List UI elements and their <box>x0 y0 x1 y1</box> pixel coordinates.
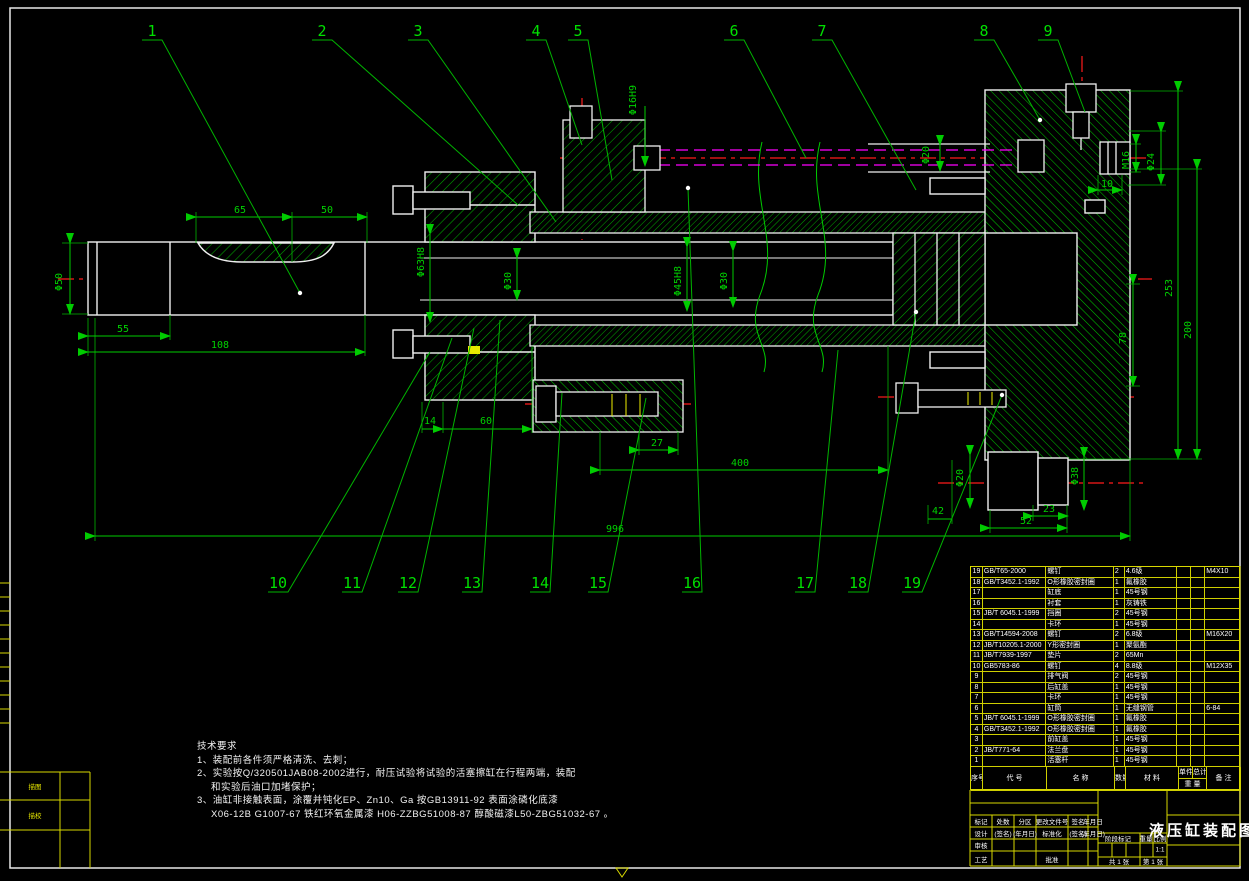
parts-cell: 活塞杆 <box>1046 756 1113 766</box>
parts-cell: 2 <box>1114 567 1125 577</box>
dimension-label: Φ63H8 <box>416 247 427 277</box>
parts-table-row: 2JB/T771-64法兰盘145号钢 <box>971 746 1239 757</box>
parts-cell <box>1177 641 1191 651</box>
parts-cell: 1 <box>1114 756 1125 766</box>
parts-cell: GB/T3452.1-1992 <box>983 725 1047 735</box>
part-callout-18: 18 <box>849 574 867 592</box>
parts-table-row: 7卡环145号钢 <box>971 693 1239 704</box>
parts-cell: JB/T 6045.1-1999 <box>983 714 1047 724</box>
dimension-label: 65 <box>234 205 246 216</box>
part-callout-1: 1 <box>147 22 156 40</box>
parts-cell <box>983 704 1047 714</box>
parts-cell <box>1191 599 1205 609</box>
parts-cell: O形橡胶密封圈 <box>1046 714 1113 724</box>
parts-cell <box>1177 672 1191 682</box>
dimension-label: 200 <box>1183 321 1194 339</box>
parts-cell: 1 <box>1114 578 1125 588</box>
parts-cell: 1 <box>1114 683 1125 693</box>
parts-cell <box>1205 746 1239 756</box>
parts-cell: O形橡胶密封圈 <box>1046 725 1113 735</box>
parts-cell <box>1205 693 1239 703</box>
parts-cell: 1 <box>1114 620 1125 630</box>
parts-table-row: 16衬套1灰铸铁 <box>971 599 1239 610</box>
notes-title: 技术要求 <box>197 740 677 754</box>
parts-cell: 1 <box>1114 714 1125 724</box>
parts-table-row: 8后缸盖145号钢 <box>971 683 1239 694</box>
parts-cell: 2 <box>1114 672 1125 682</box>
note-line: 和实验后油口加堵保护； <box>197 781 677 795</box>
dimension-label: Φ20 <box>921 146 932 164</box>
parts-cell: 12 <box>971 641 983 651</box>
parts-table-row: 6缸筒1无缝钢管6-84 <box>971 704 1239 715</box>
parts-cell <box>1177 683 1191 693</box>
rear-bore <box>985 233 1077 325</box>
part-callout-14: 14 <box>531 574 549 592</box>
gland-bolt-bottom <box>393 330 413 358</box>
parts-cell: 法兰盘 <box>1046 746 1113 756</box>
parts-cell: 无缝钢管 <box>1125 704 1178 714</box>
parts-cell <box>1177 756 1191 766</box>
parts-cell: 氟橡胶 <box>1125 578 1178 588</box>
parts-header-cell: 数量 <box>1115 767 1126 791</box>
parts-cell: 灰铸铁 <box>1125 599 1178 609</box>
dimension-label: 23 <box>1043 504 1055 515</box>
part-callout-9: 9 <box>1043 22 1052 40</box>
parts-header-cell: 重 量 <box>1179 779 1207 791</box>
parts-cell <box>1205 651 1239 661</box>
parts-cell <box>1191 641 1205 651</box>
parts-cell <box>1205 714 1239 724</box>
parts-cell: 7 <box>971 693 983 703</box>
parts-cell: 45号钢 <box>1125 609 1178 619</box>
parts-cell: 65Mn <box>1125 651 1178 661</box>
dimension-label: 14 <box>424 416 436 427</box>
parts-cell: 卡环 <box>1046 620 1113 630</box>
part-callout-4: 4 <box>531 22 540 40</box>
dimension-label: 108 <box>211 340 229 351</box>
parts-cell: 45号钢 <box>1125 735 1178 745</box>
parts-cell: 1 <box>1114 735 1125 745</box>
parts-table-row: 3前缸盖145号钢 <box>971 735 1239 746</box>
parts-cell <box>1191 651 1205 661</box>
parts-cell <box>1191 588 1205 598</box>
dimension-label: 42 <box>932 506 944 517</box>
parts-table-row: 11JB/T7939-1997垫片265Mn <box>971 651 1239 662</box>
leader-dot <box>914 310 918 314</box>
parts-header-cell: 单件 <box>1179 767 1193 779</box>
parts-cell: 卡环 <box>1046 693 1113 703</box>
parts-cell <box>1205 588 1239 598</box>
part-callout-13: 13 <box>463 574 481 592</box>
parts-cell: 1 <box>1114 704 1125 714</box>
technical-notes: 技术要求 1、装配前各件须严格清洗、去刺； 2、实验按Q/320501JAB08… <box>197 740 677 821</box>
dimension-label: 52 <box>1020 516 1032 527</box>
part-callout-6: 6 <box>729 22 738 40</box>
parts-table-rows: 19GB/T65-2000螺钉24.6级M4X1018GB/T3452.1-19… <box>971 567 1239 767</box>
parts-cell: M12X35 <box>1205 662 1239 672</box>
parts-cell: 1 <box>1114 746 1125 756</box>
parts-table: 19GB/T65-2000螺钉24.6级M4X1018GB/T3452.1-19… <box>970 566 1240 790</box>
parts-cell: 螺钉 <box>1046 630 1113 640</box>
part-callout-3: 3 <box>413 22 422 40</box>
parts-cell: M4X10 <box>1205 567 1239 577</box>
parts-cell: 2 <box>1114 609 1125 619</box>
parts-cell: 排气阀 <box>1046 672 1113 682</box>
parts-cell: 11 <box>971 651 983 661</box>
parts-cell: 1 <box>1114 588 1125 598</box>
dimension-label: Φ16H9 <box>628 85 639 115</box>
parts-cell: JB/T7939-1997 <box>983 651 1047 661</box>
parts-cell <box>1177 599 1191 609</box>
parts-cell <box>1177 651 1191 661</box>
note-line: 3、油缸非接触表面，涂覆并钝化EP、Zn10、Ga 按GB13911-92 表面… <box>197 794 677 808</box>
parts-cell: 6 <box>971 704 983 714</box>
leader-dot <box>1000 393 1004 397</box>
boss-stud <box>570 106 592 138</box>
parts-cell: 45号钢 <box>1125 693 1178 703</box>
parts-cell: 13 <box>971 630 983 640</box>
parts-cell <box>1177 704 1191 714</box>
parts-cell: 14 <box>971 620 983 630</box>
boss-bolt-head <box>536 386 556 422</box>
front-port-boss <box>563 106 645 212</box>
parts-cell <box>1177 620 1191 630</box>
dimension-label: 27 <box>651 438 663 449</box>
parts-cell <box>1191 683 1205 693</box>
gland-bolt-top <box>393 186 413 214</box>
parts-cell: 45号钢 <box>1125 672 1178 682</box>
parts-cell <box>1191 609 1205 619</box>
parts-cell: 衬套 <box>1046 599 1113 609</box>
parts-cell: 1 <box>1114 725 1125 735</box>
parts-cell: 17 <box>971 588 983 598</box>
parts-header-cell: 序号 <box>971 767 983 791</box>
rod-wrench-flat <box>198 243 334 262</box>
parts-cell: 缸底 <box>1046 588 1113 598</box>
parts-table-row: 5JB/T 6045.1-1999O形橡胶密封圈1氟橡胶 <box>971 714 1239 725</box>
parts-cell: 后缸盖 <box>1046 683 1113 693</box>
parts-cell <box>1177 578 1191 588</box>
part-callout-16: 16 <box>683 574 701 592</box>
parts-table-row: 18GB/T3452.1-1992O形橡胶密封圈1氟橡胶 <box>971 578 1239 589</box>
parts-cell: 螺钉 <box>1046 567 1113 577</box>
parts-cell: 缸筒 <box>1046 704 1113 714</box>
parts-cell <box>1205 683 1239 693</box>
callout-leader <box>848 312 916 592</box>
parts-header-cell: 名 称 <box>1047 767 1115 791</box>
part-callout-5: 5 <box>573 22 582 40</box>
parts-header-cell: 材 料 <box>1126 767 1179 791</box>
parts-cell: 3 <box>971 735 983 745</box>
parts-cell <box>983 735 1047 745</box>
parts-cell <box>1191 735 1205 745</box>
parts-cell: 45号钢 <box>1125 620 1178 630</box>
parts-table-row: 17缸底145号钢 <box>971 588 1239 599</box>
callout-leader <box>812 40 916 190</box>
parts-cell: 前缸盖 <box>1046 735 1113 745</box>
parts-cell <box>983 756 1047 766</box>
dimension-label: Φ45H8 <box>673 266 684 296</box>
parts-cell: 9 <box>971 672 983 682</box>
parts-cell: 45号钢 <box>1125 588 1178 598</box>
parts-cell: 10 <box>971 662 983 672</box>
dimension-label: 253 <box>1164 279 1175 297</box>
parts-cell <box>1177 588 1191 598</box>
leader-dot <box>298 291 302 295</box>
parts-cell <box>1205 672 1239 682</box>
parts-cell: GB/T65-2000 <box>983 567 1047 577</box>
piston <box>893 233 985 325</box>
rear-clevis <box>988 452 1068 510</box>
parts-cell <box>983 693 1047 703</box>
parts-cell: 1 <box>1114 693 1125 703</box>
parts-cell <box>1191 693 1205 703</box>
bottom-port-boss <box>533 380 683 432</box>
parts-cell: M16X20 <box>1205 630 1239 640</box>
parts-cell <box>983 599 1047 609</box>
parts-cell <box>1191 567 1205 577</box>
leader-dot <box>686 186 690 190</box>
flange-screw-top <box>930 178 985 194</box>
part-callout-17: 17 <box>796 574 814 592</box>
parts-cell: JB/T 6045.1-1999 <box>983 609 1047 619</box>
dimension-label: Φ38 <box>1070 467 1081 485</box>
parts-cell: 19 <box>971 567 983 577</box>
flange-screw-bottom <box>930 352 985 368</box>
parts-cell: 6-84 <box>1205 704 1239 714</box>
parts-cell <box>1205 725 1239 735</box>
parts-cell <box>1177 714 1191 724</box>
parts-cell: 45号钢 <box>1125 683 1178 693</box>
parts-cell: 1 <box>971 756 983 766</box>
parts-cell <box>1205 756 1239 766</box>
leader-dot <box>1038 118 1042 122</box>
part-callout-11: 11 <box>343 574 361 592</box>
parts-cell: 氟橡胶 <box>1125 725 1178 735</box>
parts-table-row: 19GB/T65-2000螺钉24.6级M4X10 <box>971 567 1239 578</box>
parts-cell <box>1191 662 1205 672</box>
parts-cell: 16 <box>971 599 983 609</box>
part-callout-15: 15 <box>589 574 607 592</box>
top-oil-passage <box>634 140 1044 172</box>
parts-table-row: 12JB/T10205.1-2000Y形密封圈1聚氨酯 <box>971 641 1239 652</box>
part-callout-8: 8 <box>979 22 988 40</box>
parts-cell: 18 <box>971 578 983 588</box>
parts-cell: O形橡胶密封圈 <box>1046 578 1113 588</box>
parts-cell <box>983 588 1047 598</box>
parts-cell <box>1191 630 1205 640</box>
parts-cell: 挡圈 <box>1046 609 1113 619</box>
parts-cell: 8.8级 <box>1125 662 1178 672</box>
parts-cell: JB/T10205.1-2000 <box>983 641 1047 651</box>
passage-fitting-rear <box>1018 140 1044 172</box>
part-callout-19: 19 <box>903 574 921 592</box>
parts-cell: 5 <box>971 714 983 724</box>
parts-cell: 螺钉 <box>1046 662 1113 672</box>
parts-table-row: 15JB/T 6045.1-1999挡圈245号钢 <box>971 609 1239 620</box>
parts-cell <box>1205 578 1239 588</box>
parts-cell: 8 <box>971 683 983 693</box>
parts-cell <box>983 672 1047 682</box>
parts-table-row: 14卡环145号钢 <box>971 620 1239 631</box>
parts-cell <box>983 683 1047 693</box>
parts-cell: 2 <box>1114 651 1125 661</box>
callout-leader <box>268 352 430 592</box>
parts-cell <box>1191 672 1205 682</box>
parts-cell <box>1177 746 1191 756</box>
parts-table-header: 序号代 号名 称数量材 料单件总计重 量备 注 <box>971 766 1239 791</box>
parts-cell <box>1205 735 1239 745</box>
parts-cell <box>1191 578 1205 588</box>
parts-cell: GB/T14594-2008 <box>983 630 1047 640</box>
dimension-label: 78 <box>1118 332 1129 344</box>
parts-cell <box>1177 725 1191 735</box>
dimension-label: 400 <box>731 458 749 469</box>
parts-cell: 氟橡胶 <box>1125 714 1178 724</box>
parts-cell: GB5783-86 <box>983 662 1047 672</box>
parts-cell <box>1191 725 1205 735</box>
parts-cell <box>1191 620 1205 630</box>
parts-cell: 15 <box>971 609 983 619</box>
parts-table-row: 10GB5783-86螺钉48.8级M12X35 <box>971 662 1239 673</box>
parts-cell <box>1205 609 1239 619</box>
parts-cell <box>1205 641 1239 651</box>
dimension-label: M16 <box>1121 151 1132 169</box>
parts-cell <box>1191 714 1205 724</box>
parts-cell: 聚氨酯 <box>1125 641 1178 651</box>
dimension-label: 10 <box>1101 179 1113 190</box>
parts-cell: 2 <box>1114 630 1125 640</box>
parts-cell <box>1177 609 1191 619</box>
parts-cell <box>1205 599 1239 609</box>
parts-cell <box>1205 620 1239 630</box>
parts-table-row: 9排气阀245号钢 <box>971 672 1239 683</box>
parts-table-row: 4GB/T3452.1-1992O形橡胶密封圈1氟橡胶 <box>971 725 1239 736</box>
parts-table-row: 13GB/T14594-2008螺钉26.8级M16X20 <box>971 630 1239 641</box>
note-line: 2、实验按Q/320501JAB08-2002进行，耐压试验将试验的活塞擦缸在行… <box>197 767 677 781</box>
dimension-label: 60 <box>480 416 492 427</box>
parts-cell <box>1177 630 1191 640</box>
parts-header-cell: 备 注 <box>1207 767 1241 791</box>
parts-cell: 6.8级 <box>1125 630 1178 640</box>
cad-drawing-screenshot: Φ50551086550Φ63H8Φ30Φ16H9Φ45H8Φ301460274… <box>0 0 1249 881</box>
parts-cell: 45号钢 <box>1125 756 1178 766</box>
parts-cell <box>1191 704 1205 714</box>
part-callout-12: 12 <box>399 574 417 592</box>
parts-cell: 4.6级 <box>1125 567 1178 577</box>
dimension-label: Φ20 <box>955 469 966 487</box>
parts-header-cell: 代 号 <box>983 767 1047 791</box>
parts-cell: JB/T771-64 <box>983 746 1047 756</box>
parts-cell: 4 <box>1114 662 1125 672</box>
note-line: 1、装配前各件须严格清洗、去刺； <box>197 754 677 768</box>
part-callout-10: 10 <box>269 574 287 592</box>
parts-cell <box>1177 662 1191 672</box>
part-callout-7: 7 <box>817 22 826 40</box>
parts-cell: 4 <box>971 725 983 735</box>
parts-cell <box>1191 756 1205 766</box>
callout-leader <box>724 40 806 158</box>
dimension-label: Φ24 <box>1146 153 1157 171</box>
parts-cell: GB/T3452.1-1992 <box>983 578 1047 588</box>
parts-cell <box>1177 735 1191 745</box>
parts-cell: 2 <box>971 746 983 756</box>
parts-cell: 1 <box>1114 599 1125 609</box>
parts-cell: 垫片 <box>1046 651 1113 661</box>
parts-header-cell: 总计 <box>1193 767 1207 779</box>
dimension-label: 55 <box>117 324 129 335</box>
note-line: X06-12B G1007-67 铁红环氧金属漆 H06-ZZBG51008-8… <box>197 808 677 822</box>
small-fitting <box>1085 200 1105 213</box>
parts-cell: 1 <box>1114 641 1125 651</box>
dimension-label: Φ30 <box>719 272 730 290</box>
part-callout-2: 2 <box>317 22 326 40</box>
passage-fitting-front <box>634 146 660 170</box>
parts-cell: 45号钢 <box>1125 746 1178 756</box>
callout-leader <box>795 350 838 592</box>
piston-rod <box>88 242 988 315</box>
parts-table-row: 1活塞杆145号钢 <box>971 756 1239 767</box>
dimension-label: 50 <box>321 205 333 216</box>
parts-cell: Y形密封圈 <box>1046 641 1113 651</box>
parts-cell <box>1191 746 1205 756</box>
parts-cell <box>1177 693 1191 703</box>
dimension-label: Φ50 <box>54 273 65 291</box>
dimension-label: Φ30 <box>503 272 514 290</box>
parts-cell <box>983 620 1047 630</box>
parts-cell <box>1177 567 1191 577</box>
